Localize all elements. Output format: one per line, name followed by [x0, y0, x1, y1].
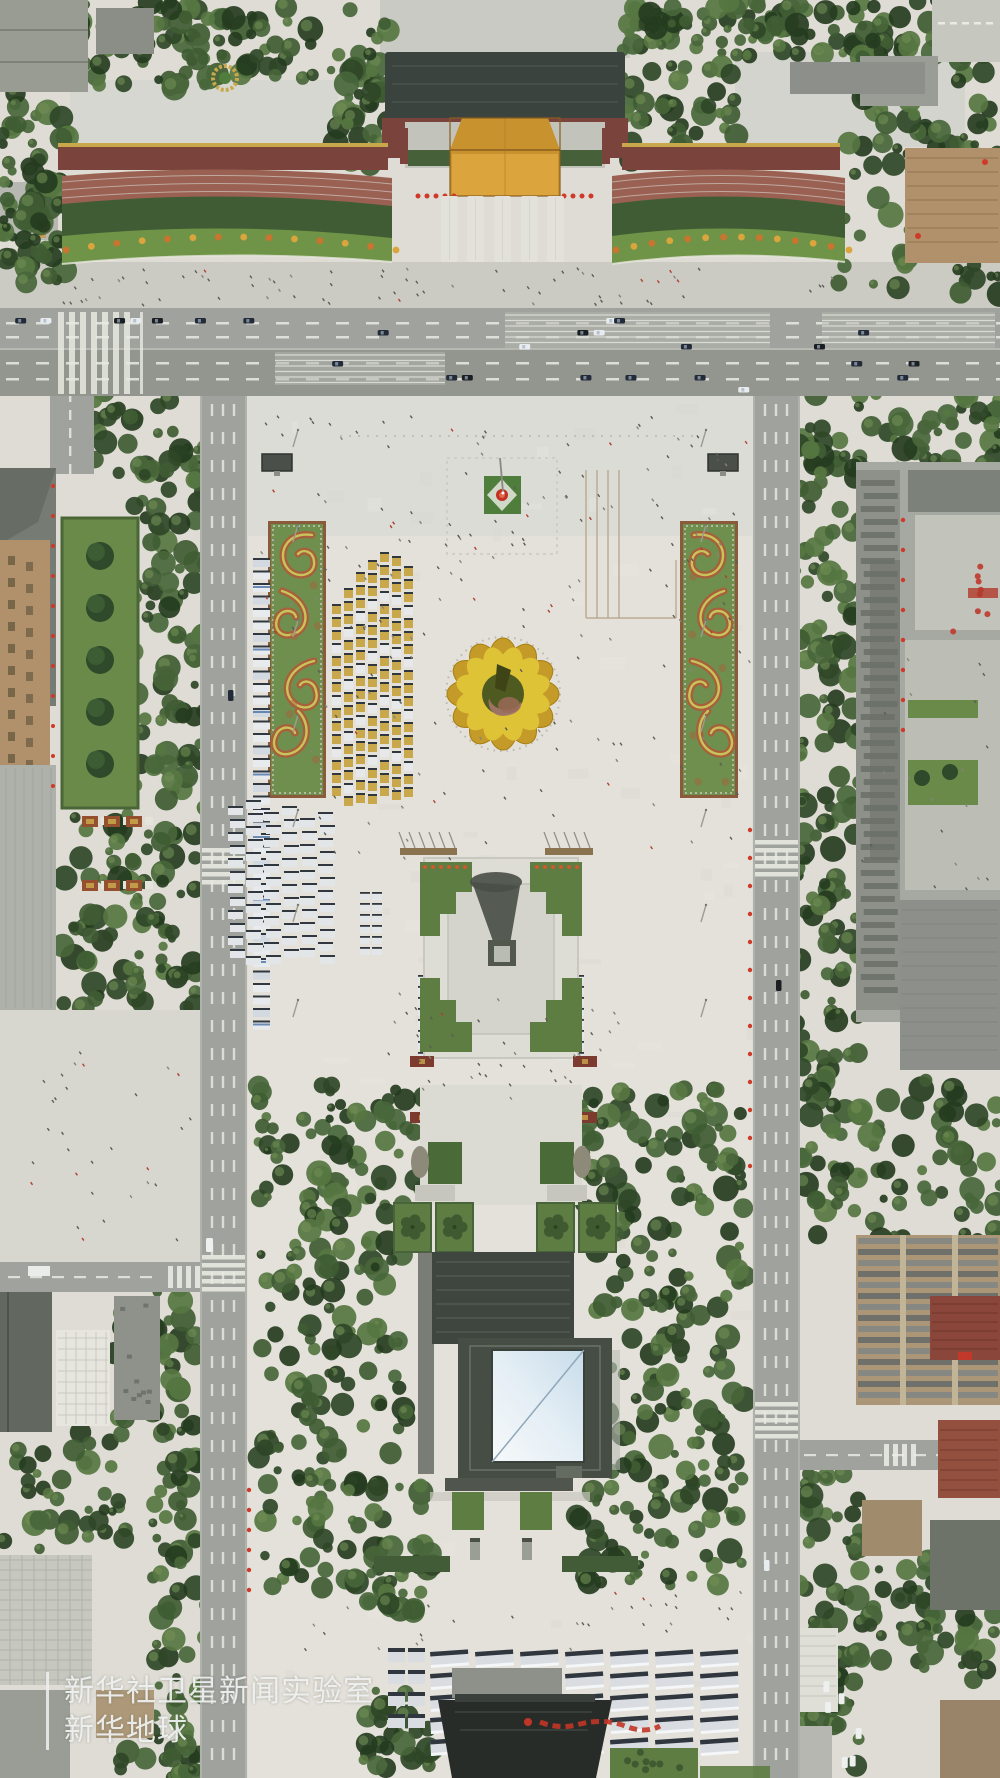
- great-hall-tan-block: [0, 540, 50, 766]
- flower-bed: [268, 521, 326, 798]
- crosswalk: [755, 864, 798, 869]
- white-building: [56, 1330, 110, 1426]
- crosswalk: [755, 840, 798, 845]
- watermark: 新华社卫星新闻实验室 新华地球: [46, 1672, 374, 1750]
- crosswalk: [755, 1426, 798, 1431]
- crosswalk: [202, 1287, 245, 1292]
- crosswalk: [755, 1434, 798, 1439]
- satellite-image-tiananmen-square: 新华社卫星新闻实验室 新华地球: [0, 0, 1000, 1778]
- hedge-bar: [374, 1556, 450, 1572]
- parked-bus: [700, 1671, 739, 1690]
- changan-avenue: [0, 308, 1000, 396]
- parked-bus: [700, 1693, 739, 1712]
- hedge-square: [428, 1142, 462, 1184]
- watermark-line2: 新华地球: [64, 1711, 374, 1750]
- parked-bus: [655, 1649, 694, 1668]
- red-building: [930, 1296, 1000, 1360]
- crosswalk: [202, 880, 245, 885]
- watermark-bar: [46, 1672, 49, 1750]
- crosswalk-bar: [58, 312, 64, 394]
- parked-bus: [610, 1693, 649, 1712]
- crosswalk-bar: [124, 312, 130, 394]
- parked-bus: [610, 1671, 649, 1690]
- east-compound: [905, 148, 1000, 263]
- parked-bus: [475, 1649, 514, 1668]
- parked-bus: [700, 1649, 739, 1668]
- led-screen: [708, 454, 738, 471]
- parked-bus: [565, 1671, 604, 1690]
- rooftop: [0, 0, 88, 92]
- crosswalk-bar: [113, 312, 119, 394]
- crosswalk: [755, 1418, 798, 1423]
- crosswalk: [202, 1279, 245, 1284]
- crosswalk: [755, 1410, 798, 1415]
- great-hall-east-plaza: [0, 1010, 200, 1262]
- hedge-bar: [562, 1556, 638, 1572]
- crosswalk-bar: [69, 312, 75, 394]
- red-building: [938, 1420, 1000, 1498]
- crosswalk: [202, 1271, 245, 1276]
- parked-bus: [655, 1671, 694, 1690]
- parked-bus: [430, 1649, 469, 1668]
- hedge-square: [540, 1142, 574, 1184]
- red-wall-east: [622, 146, 840, 170]
- crosswalk-bar: [80, 312, 86, 394]
- upper-hall-roof: [385, 52, 625, 128]
- parked-bus: [700, 1715, 739, 1734]
- crosswalk: [202, 1263, 245, 1268]
- parked-bus: [520, 1649, 559, 1668]
- monument-obelisk: [494, 946, 510, 962]
- crosswalk-bar: [91, 312, 97, 394]
- crosswalk: [755, 872, 798, 877]
- led-screen: [262, 454, 292, 471]
- crosswalk: [202, 1255, 245, 1260]
- flag-stand: [545, 848, 593, 855]
- north-portico-roof: [432, 1252, 574, 1344]
- parked-bus: [565, 1649, 604, 1668]
- parked-bus: [700, 1737, 739, 1756]
- crosswalk: [755, 856, 798, 861]
- parked-bus: [610, 1649, 649, 1668]
- flag-stand: [400, 848, 457, 855]
- satellite-scene: [0, 0, 1000, 1778]
- flower-bed: [680, 521, 738, 798]
- parked-bus: [655, 1715, 694, 1734]
- great-hall-light-roof: [0, 765, 56, 1011]
- crosswalk: [755, 848, 798, 853]
- red-wall-west: [58, 146, 388, 170]
- crosswalk-bar: [102, 312, 108, 394]
- watermark-line1: 新华社卫星新闻实验室: [64, 1672, 374, 1711]
- crosswalk: [755, 1402, 798, 1407]
- parked-bus: [655, 1693, 694, 1712]
